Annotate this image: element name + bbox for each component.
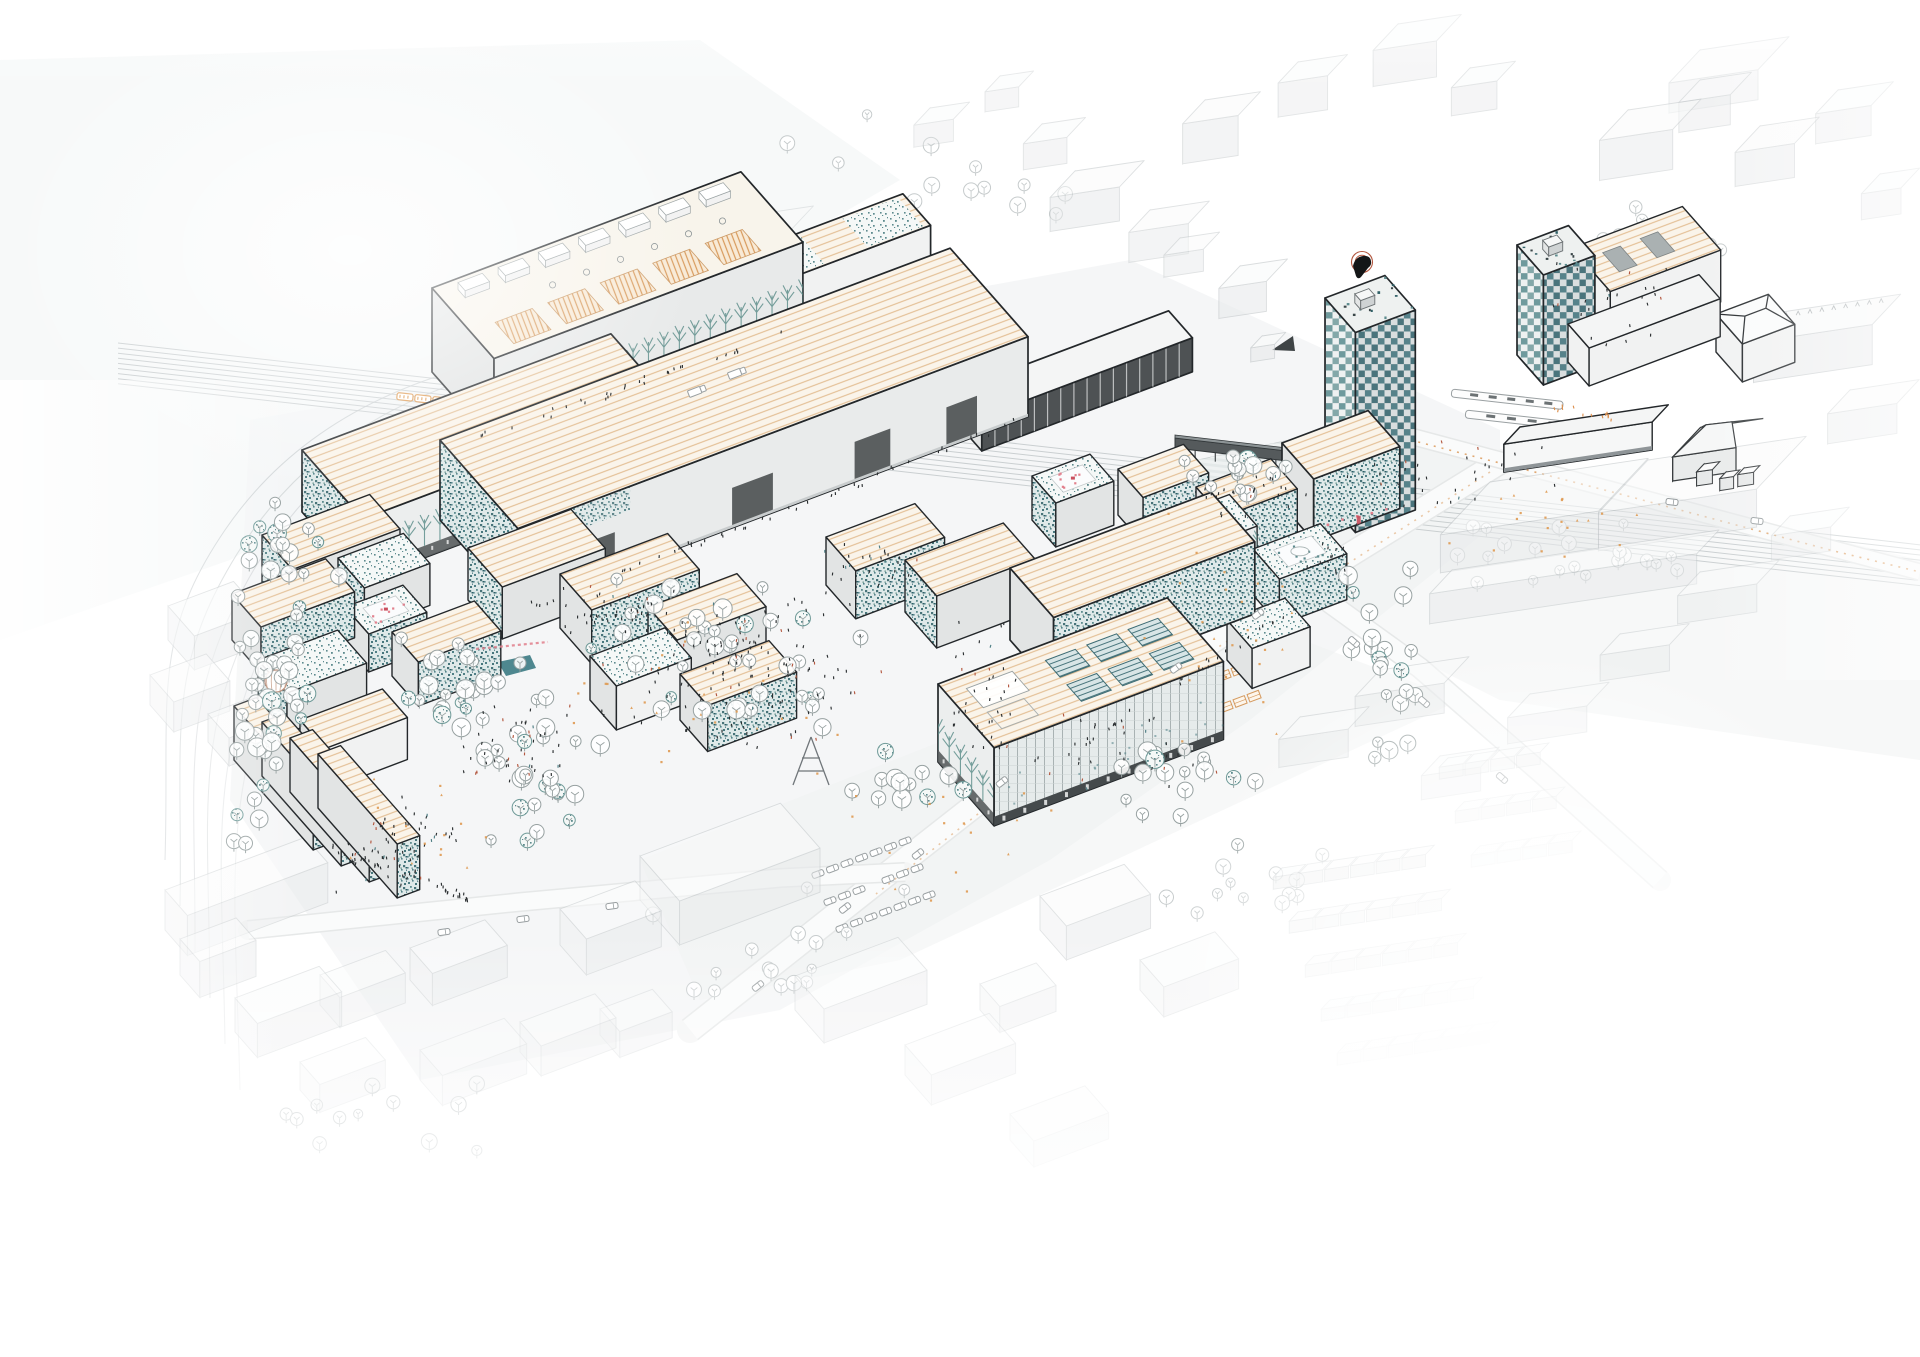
train	[1451, 389, 1563, 409]
context-building	[914, 102, 970, 147]
masterplan-illustration: architectural-axonometric-masterplan-ill…	[0, 0, 1920, 1357]
context-building	[1600, 99, 1702, 180]
bird-marker	[1352, 252, 1373, 279]
context-building	[1050, 161, 1144, 232]
masterplan-canvas	[0, 0, 1920, 1357]
context-building	[1023, 118, 1085, 170]
context-building	[1219, 259, 1288, 319]
context-building	[1183, 92, 1261, 164]
